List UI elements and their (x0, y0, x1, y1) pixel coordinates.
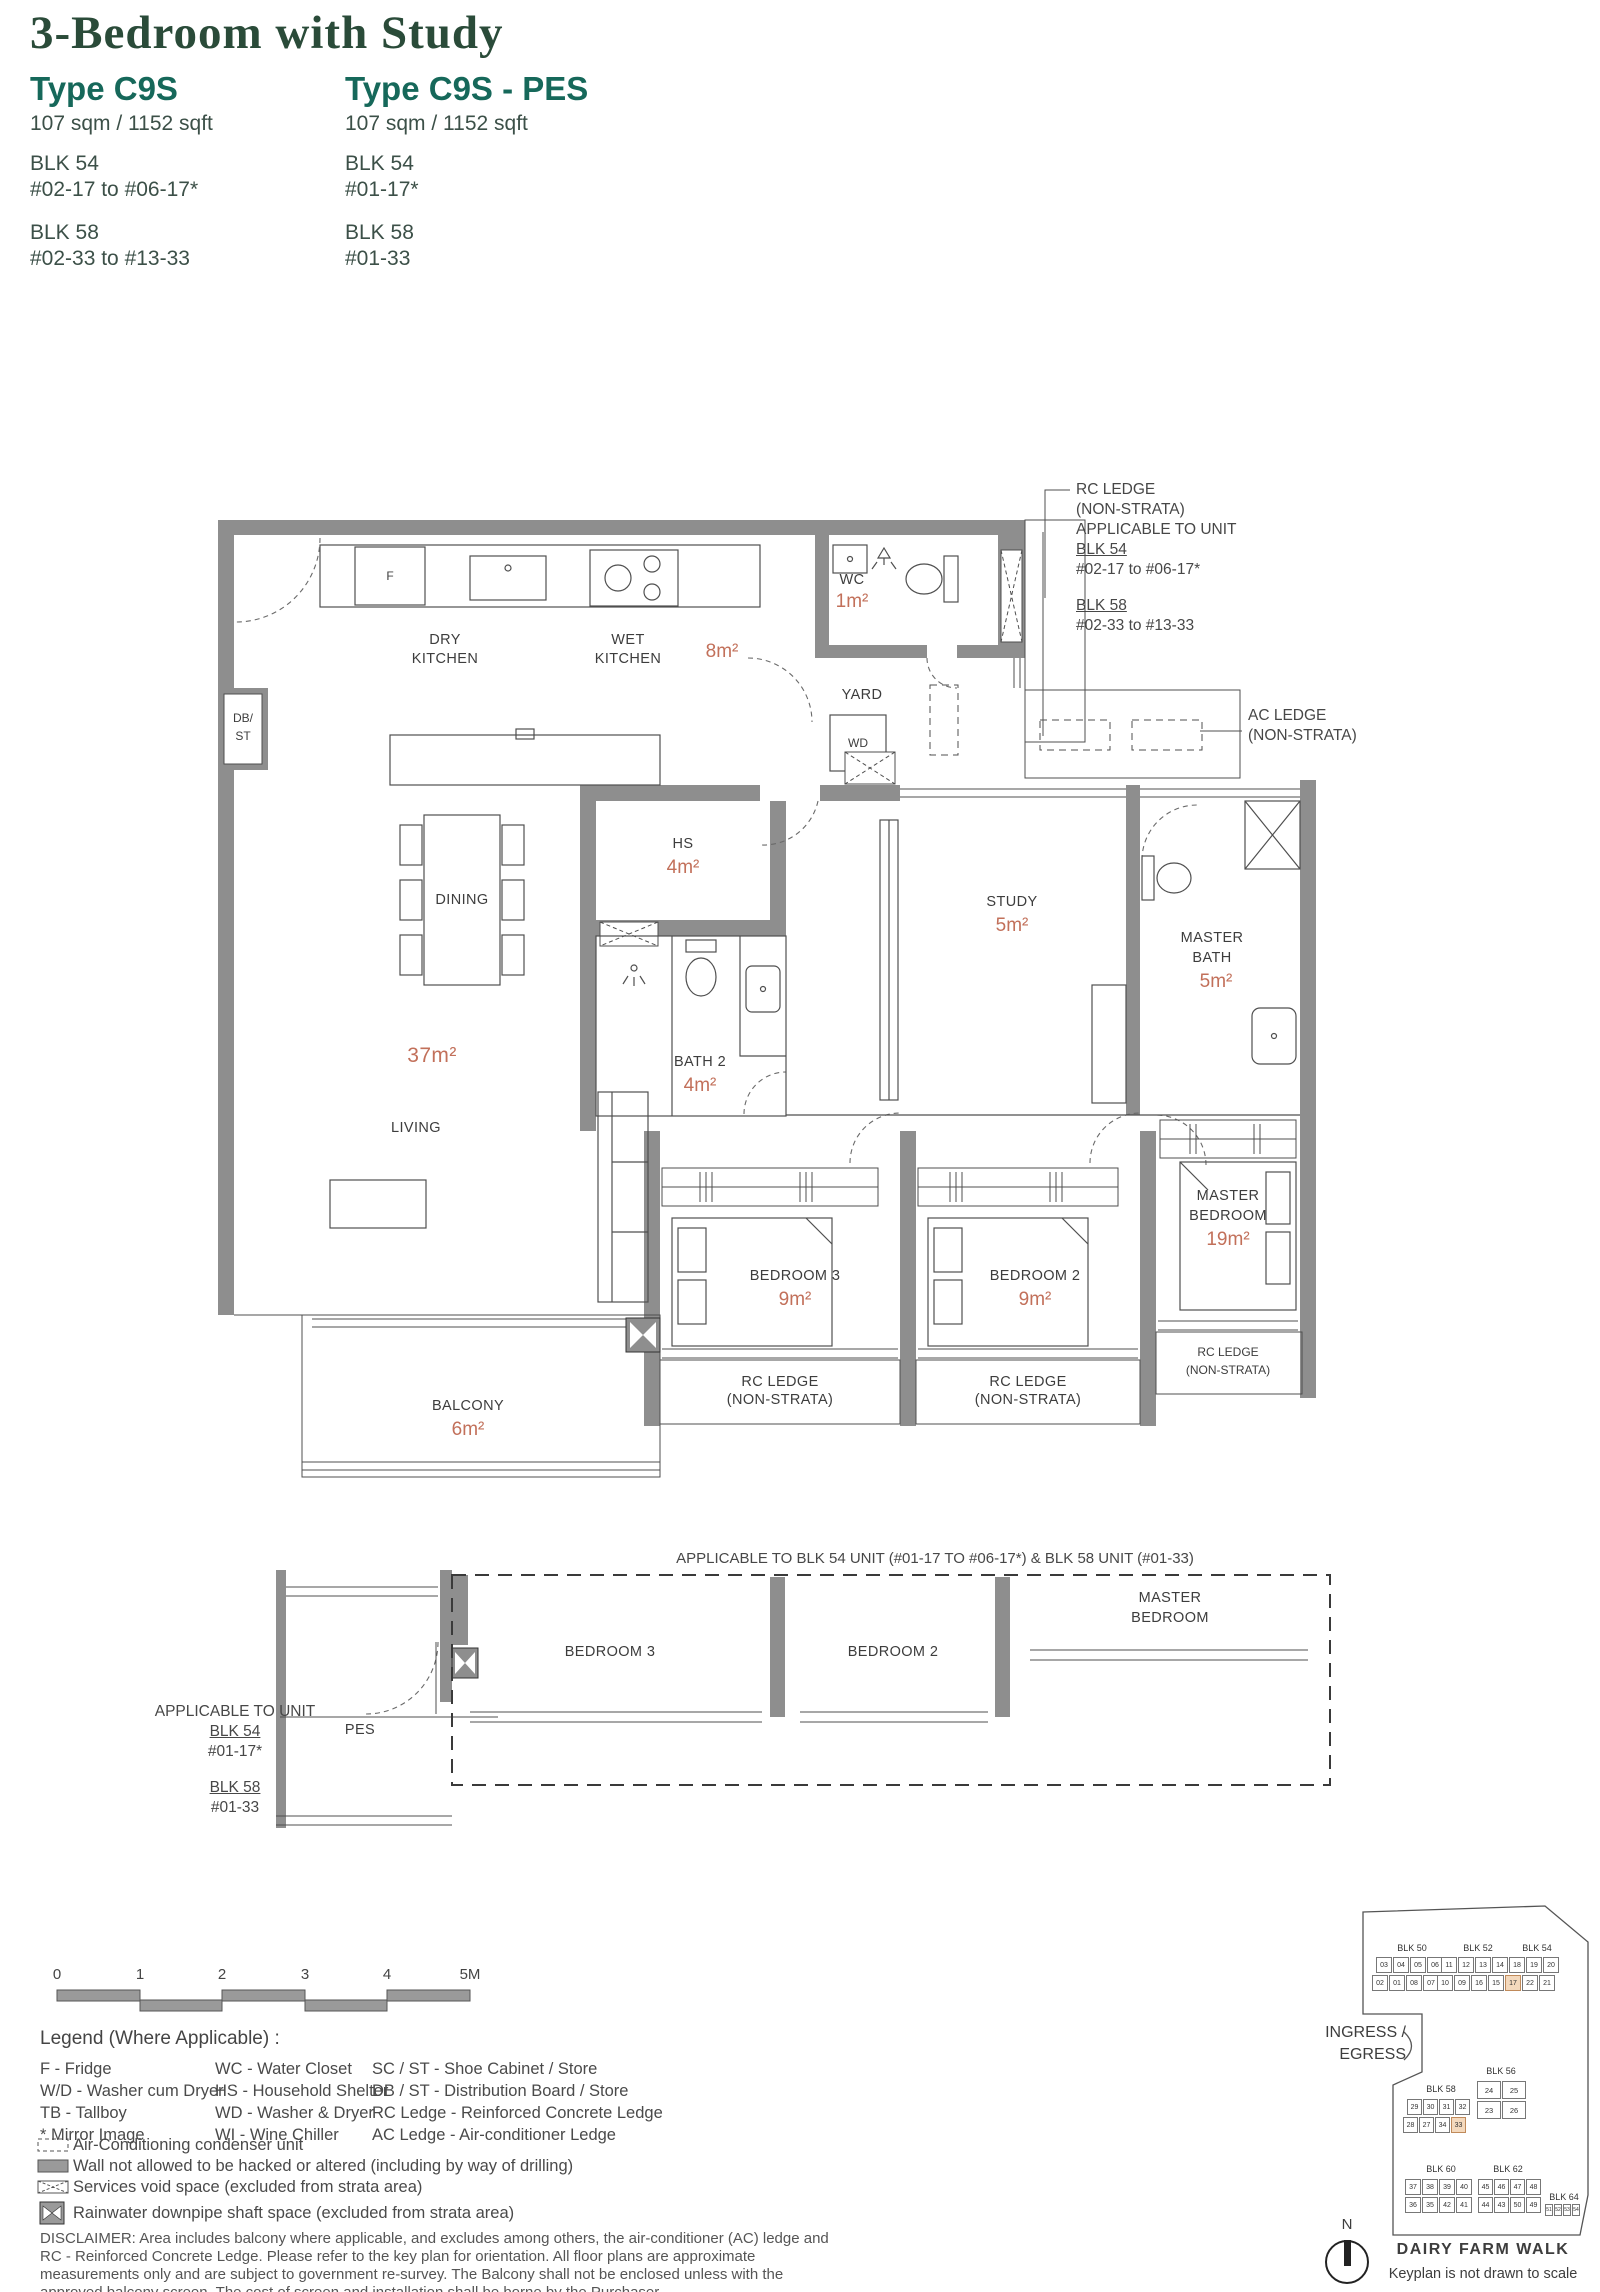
keyplan-unit: 41 (1456, 2197, 1472, 2213)
scale-tick: 2 (218, 1966, 226, 1983)
egress-label: EGRESS (1306, 2046, 1406, 2064)
room-label-dry-kitchen: DRY (429, 632, 461, 648)
pes-l1: APPLICABLE TO UNIT (155, 1702, 316, 1722)
pes-u2: #01-33 (155, 1798, 316, 1818)
upper-windows (900, 789, 1300, 797)
spacer (1076, 580, 1237, 596)
keyplan-unit: 50 (1510, 2197, 1525, 2213)
area-wc: 1m² (836, 594, 869, 610)
keyplan-block-label: BLK 60 (1426, 2164, 1456, 2174)
type-1-units-2: #02-33 to #13-33 (30, 247, 190, 271)
rc-ledge-label-b3-2: (NON-STRATA) (727, 1392, 834, 1408)
services-void-top (1001, 550, 1022, 642)
rc-ledge-label-master-2: (NON-STRATA) (1186, 1362, 1270, 1378)
ground-variant (452, 1575, 1330, 1785)
door-arcs (236, 538, 1206, 1714)
ac-l2: (NON-STRATA) (1248, 726, 1357, 746)
keyplan-unit: 18 (1509, 1957, 1525, 1973)
room-label-wet-kitchen-2: KITCHEN (595, 651, 661, 667)
legend-abbreviation: HS - Household Shelter (215, 2082, 388, 2101)
keyplan-unit: 10 (1437, 1975, 1453, 1991)
keyplan-block-label: BLK 58 (1426, 2084, 1456, 2094)
scale-bar (57, 1990, 470, 2011)
type-2-area: 107 sqm / 1152 sqft (345, 112, 528, 136)
legend-symbol-caption: Wall not allowed to be hacked or altered… (73, 2157, 573, 2176)
room-label-living: LIVING (391, 1120, 441, 1136)
room-label-master-bedroom-2: BEDROOM (1189, 1208, 1267, 1224)
legend-abbreviation: W/D - Washer cum Dryer (40, 2082, 224, 2101)
keyplan-unit: 34 (1435, 2117, 1450, 2133)
type-1-blk-2: BLK 58 (30, 221, 99, 245)
rc-top-l1: RC LEDGE (1076, 480, 1237, 500)
keyplan-unit: 42 (1439, 2197, 1455, 2213)
legend-title: Legend (Where Applicable) : (40, 2028, 280, 2050)
rc-ledge-label-master: RC LEDGE (1197, 1344, 1258, 1360)
room-label-dbst-2: ST (235, 728, 250, 744)
keyplan-unit: 23 (1477, 2101, 1501, 2119)
legend-abbreviation: F - Fridge (40, 2060, 112, 2079)
area-balcony: 6m² (452, 1422, 485, 1438)
room-label-dbst: DB/ (233, 710, 253, 726)
keyplan-unit: 28 (1403, 2117, 1418, 2133)
living-furniture (330, 1092, 648, 1302)
scale-tick: 1 (136, 1966, 144, 1983)
pes-annotation: APPLICABLE TO UNIT BLK 54 #01-17* BLK 58… (155, 1702, 316, 1818)
rc-top-l2: (NON-STRATA) (1076, 500, 1237, 520)
keyplan-unit: 36 (1405, 2197, 1421, 2213)
area-bedroom3: 9m² (779, 1292, 812, 1308)
legend-symbols (38, 2139, 68, 2224)
study-fixtures (880, 820, 1126, 1103)
legend-abbreviation: RC Ledge - Reinforced Concrete Ledge (372, 2104, 663, 2123)
keyplan-unit: 53 (1563, 2204, 1571, 2216)
legend-abbreviation: WD - Washer & Dryer (215, 2104, 374, 2123)
keyplan-unit: 16 (1471, 1975, 1487, 1991)
keyplan-unit: 21 (1539, 1975, 1555, 1991)
room-label-dining: DINING (435, 892, 488, 908)
keyplan-unit: 31 (1439, 2099, 1454, 2115)
ingress-label: INGRESS / (1306, 2024, 1406, 2042)
room-label-yard: YARD (842, 687, 883, 703)
type-1-units-1: #02-17 to #06-17* (30, 178, 198, 202)
room-label-master-bath-2: BATH (1192, 950, 1231, 966)
keyplan-unit: 25 (1502, 2081, 1526, 2099)
area-living: 37m² (407, 1048, 456, 1064)
rc-ledge-label-b3: RC LEDGE (741, 1374, 818, 1390)
keyplan-unit: 38 (1422, 2179, 1438, 2195)
floorplan-linework (0, 0, 1600, 2292)
room-label-study: STUDY (986, 894, 1037, 910)
keyplan-unit: 27 (1419, 2117, 1434, 2133)
legend-symbol-caption: Rainwater downpipe shaft space (excluded… (73, 2204, 514, 2223)
pes-u1: #01-17* (155, 1742, 316, 1762)
keyplan-unit: 33 (1451, 2117, 1466, 2133)
room-label-dry-kitchen-2: KITCHEN (412, 651, 478, 667)
keyplan-unit: 14 (1492, 1957, 1508, 1973)
keyplan-note: Keyplan is not drawn to scale (1368, 2266, 1598, 2282)
ac-ledge-annotation: AC LEDGE (NON-STRATA) (1248, 706, 1357, 746)
legend-symbol-caption: Services void space (excluded from strat… (73, 2178, 422, 2197)
rc-leader (1045, 490, 1070, 598)
room-label-master-bath: MASTER (1181, 930, 1244, 946)
keyplan-block-label: BLK 62 (1493, 2164, 1523, 2174)
area-study: 5m² (996, 918, 1029, 934)
street-label: DAIRY FARM WALK (1373, 2241, 1593, 2259)
type-2-blk-1: BLK 54 (345, 152, 414, 176)
rc-ledge-annotation: RC LEDGE (NON-STRATA) APPLICABLE TO UNIT… (1076, 480, 1237, 636)
yard-window (1014, 658, 1020, 688)
room-label-fridge: F (386, 568, 393, 584)
walls (218, 520, 1316, 1828)
room-label-pes: PES (345, 1722, 375, 1738)
area-master-bath: 5m² (1200, 974, 1233, 990)
keyplan-unit: 22 (1522, 1975, 1538, 1991)
keyplan-unit: 35 (1422, 2197, 1438, 2213)
keyplan-block-label: BLK 50 (1397, 1943, 1427, 1953)
keyplan-unit: 52 (1554, 2204, 1562, 2216)
keyplan-unit: 40 (1456, 2179, 1472, 2195)
keyplan-unit: 09 (1454, 1975, 1470, 1991)
keyplan-unit: 01 (1389, 1975, 1405, 1991)
legend-abbreviation: TB - Tallboy (40, 2104, 127, 2123)
keyplan-unit: 24 (1477, 2081, 1501, 2099)
room-label-wet-kitchen: WET (611, 632, 644, 648)
spacer (155, 1762, 316, 1778)
room-label-wc: WC (840, 572, 865, 588)
type-1-area: 107 sqm / 1152 sqft (30, 112, 213, 136)
keyplan-unit: 45 (1478, 2179, 1493, 2195)
legend-abbreviation: WC - Water Closet (215, 2060, 352, 2079)
scale-tick: 0 (53, 1966, 61, 1983)
keyplan-unit: 29 (1407, 2099, 1422, 2115)
pes-blk2: BLK 58 (155, 1778, 316, 1798)
scale-tick: 3 (301, 1966, 309, 1983)
keyplan-unit: 19 (1526, 1957, 1542, 1973)
ground-master-2: BEDROOM (1131, 1610, 1209, 1626)
legend-symbol-caption: Air-Conditioning condenser unit (73, 2136, 303, 2155)
keyplan-unit: 39 (1439, 2179, 1455, 2195)
rc-ledge-label-b2: RC LEDGE (989, 1374, 1066, 1390)
type-2-units-2: #01-33 (345, 247, 410, 271)
scale-tick: 5M (460, 1966, 481, 1983)
area-hs: 4m² (667, 860, 700, 876)
keyplan-unit: 15 (1488, 1975, 1504, 1991)
keyplan-block-label: BLK 64 (1549, 2192, 1579, 2202)
compass-n-label: N (1342, 2216, 1353, 2233)
keyplan-unit: 30 (1423, 2099, 1438, 2115)
keyplan-unit: 04 (1393, 1957, 1409, 1973)
disclaimer: DISCLAIMER: Area includes balcony where … (40, 2230, 840, 2292)
keyplan-unit: 54 (1572, 2204, 1580, 2216)
rc-top-u1: #02-17 to #06-17* (1076, 560, 1237, 580)
type-1-name: Type C9S (30, 70, 178, 108)
keyplan-unit: 26 (1502, 2101, 1526, 2119)
pes-blk1: BLK 54 (155, 1722, 316, 1742)
area-bath2: 4m² (684, 1078, 717, 1094)
ground-master: MASTER (1139, 1590, 1202, 1606)
room-label-bath2: BATH 2 (674, 1054, 726, 1070)
room-label-wd: WD (848, 735, 868, 751)
keyplan-unit: 51 (1545, 2204, 1553, 2216)
scale-tick: 4 (383, 1966, 391, 1983)
keyplan-unit: 32 (1455, 2099, 1470, 2115)
rc-top-u2: #02-33 to #13-33 (1076, 616, 1237, 636)
room-label-hs: HS (673, 836, 694, 852)
legend-abbreviation: SC / ST - Shoe Cabinet / Store (372, 2060, 597, 2079)
keyplan-block-label: BLK 56 (1486, 2066, 1516, 2076)
keyplan-unit: 48 (1526, 2179, 1541, 2195)
compass-needle (1344, 2240, 1351, 2266)
keyplan-unit: 47 (1510, 2179, 1525, 2195)
keyplan-unit: 12 (1458, 1957, 1474, 1973)
keyplan-unit: 13 (1475, 1957, 1491, 1973)
keyplan-unit: 11 (1441, 1957, 1457, 1973)
room-label-master-bedroom: MASTER (1197, 1188, 1260, 1204)
keyplan-unit: 17 (1505, 1975, 1521, 1991)
type-2-blk-2: BLK 58 (345, 221, 414, 245)
type-2-units-1: #01-17* (345, 178, 419, 202)
type-1-blk-1: BLK 54 (30, 152, 99, 176)
type-2-name: Type C9S - PES (345, 70, 588, 108)
room-label-bedroom2: BEDROOM 2 (990, 1268, 1081, 1284)
floorplan-page: 3-Bedroom with Study Type C9S 107 sqm / … (0, 0, 1600, 2292)
keyplan-unit: 02 (1372, 1975, 1388, 1991)
ac-l1: AC LEDGE (1248, 706, 1357, 726)
keyplan-unit: 43 (1494, 2197, 1509, 2213)
keyplan-block-label: BLK 54 (1522, 1943, 1552, 1953)
rainwater-downpipe (452, 1318, 660, 1678)
room-label-bedroom3: BEDROOM 3 (750, 1268, 841, 1284)
keyplan-unit: 08 (1406, 1975, 1422, 1991)
rc-top-blk2: BLK 58 (1076, 596, 1237, 616)
keyplan-unit: 20 (1543, 1957, 1559, 1973)
keyplan-unit: 03 (1376, 1957, 1392, 1973)
page-title: 3-Bedroom with Study (30, 6, 504, 60)
room-label-balcony: BALCONY (432, 1398, 504, 1414)
keyplan-unit: 46 (1494, 2179, 1509, 2195)
balcony-lines (234, 1315, 660, 1477)
keyplan-unit: 44 (1478, 2197, 1493, 2213)
legend-abbreviation: DB / ST - Distribution Board / Store (372, 2082, 628, 2101)
rc-top-blk1: BLK 54 (1076, 540, 1237, 560)
keyplan-block-label: BLK 52 (1463, 1943, 1493, 1953)
ground-note: APPLICABLE TO BLK 54 UNIT (#01-17 TO #06… (676, 1550, 1194, 1567)
ground-bedroom3: BEDROOM 3 (565, 1644, 656, 1660)
area-master-bedroom: 19m² (1206, 1232, 1249, 1248)
keyplan-unit: 49 (1526, 2197, 1541, 2213)
services-void-bath (600, 752, 895, 946)
keyplan-unit: 37 (1405, 2179, 1421, 2195)
area-wet-kitchen: 8m² (706, 644, 739, 660)
rc-ledge-label-b2-2: (NON-STRATA) (975, 1392, 1082, 1408)
keyplan-unit: 05 (1410, 1957, 1426, 1973)
legend-abbreviation: AC Ledge - Air-conditioner Ledge (372, 2126, 616, 2145)
area-bedroom2: 9m² (1019, 1292, 1052, 1308)
rc-top-l3: APPLICABLE TO UNIT (1076, 520, 1237, 540)
ground-bedroom2: BEDROOM 2 (848, 1644, 939, 1660)
